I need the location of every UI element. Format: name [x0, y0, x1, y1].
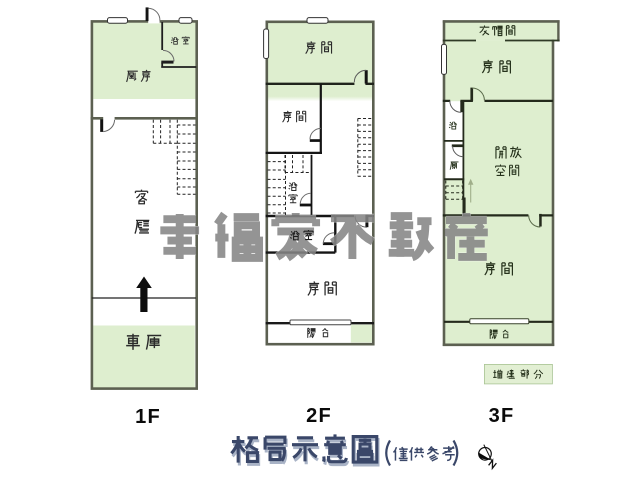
svg-text:3F: 3F: [489, 405, 515, 427]
svg-text:2F: 2F: [306, 405, 332, 427]
svg-text:1F: 1F: [135, 406, 161, 428]
